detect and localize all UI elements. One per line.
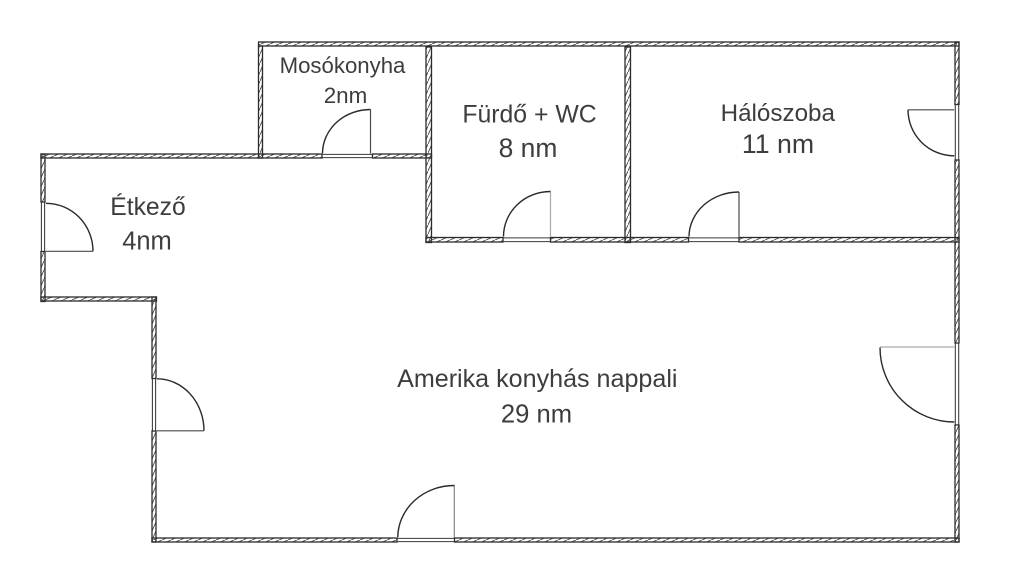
svg-text:4nm: 4nm bbox=[122, 228, 172, 256]
svg-text:Amerika konyhás nappali: Amerika konyhás nappali bbox=[397, 365, 677, 393]
svg-text:Mosókonyha: Mosókonyha bbox=[280, 53, 406, 78]
svg-text:Fürdő + WC: Fürdő + WC bbox=[462, 102, 596, 129]
svg-text:29 nm: 29 nm bbox=[501, 401, 572, 429]
svg-text:8 nm: 8 nm bbox=[499, 133, 558, 163]
svg-text:Étkező: Étkező bbox=[110, 194, 185, 221]
svg-text:2nm: 2nm bbox=[324, 83, 368, 108]
svg-text:11 nm: 11 nm bbox=[742, 129, 814, 159]
svg-text:Hálószoba: Hálószoba bbox=[721, 100, 836, 127]
